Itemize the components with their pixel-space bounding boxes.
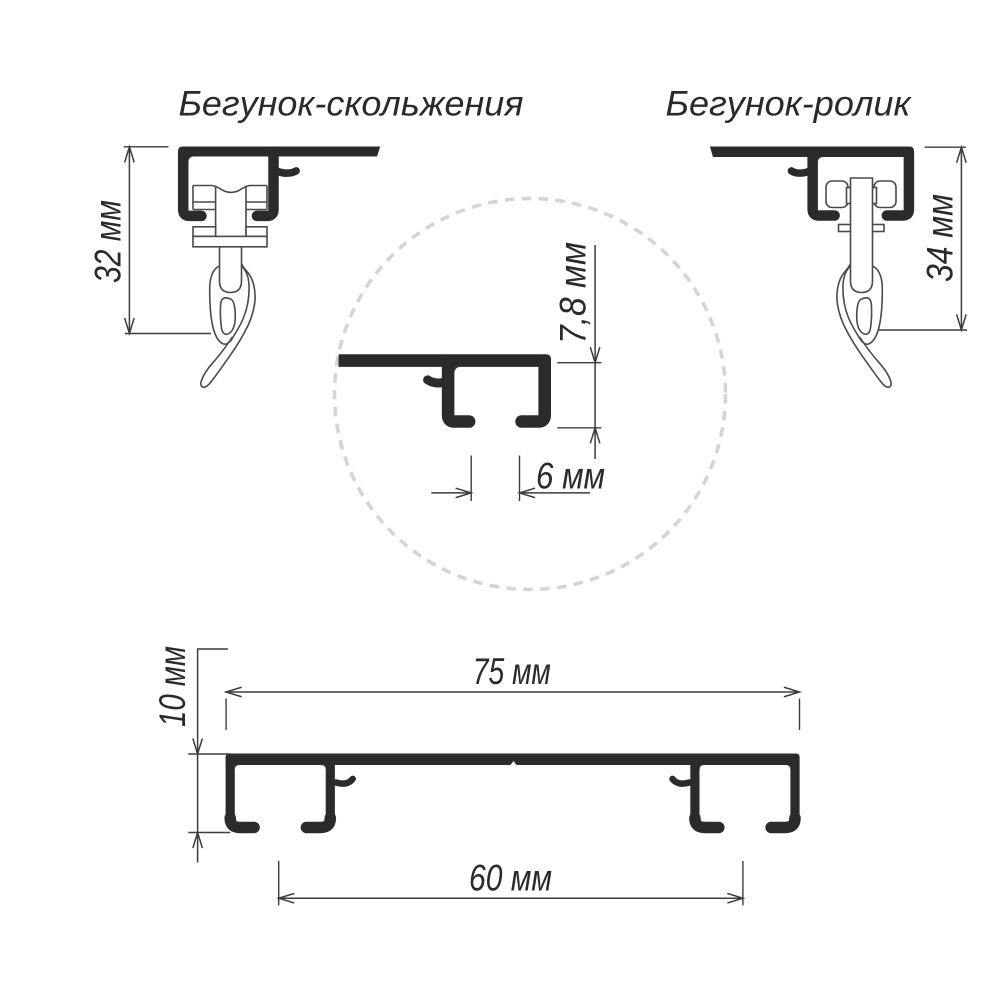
- svg-text:7,8 мм: 7,8 мм: [552, 242, 594, 344]
- svg-text:Бегунок-ролик: Бегунок-ролик: [666, 85, 913, 124]
- svg-text:6 мм: 6 мм: [536, 454, 605, 496]
- svg-text:75 мм: 75 мм: [473, 650, 551, 692]
- svg-text:32 мм: 32 мм: [87, 200, 129, 283]
- svg-text:60 мм: 60 мм: [469, 857, 552, 899]
- svg-text:34 мм: 34 мм: [919, 194, 961, 282]
- svg-text:10 мм: 10 мм: [151, 646, 193, 727]
- svg-text:Бегунок-скольжения: Бегунок-скольжения: [179, 85, 524, 124]
